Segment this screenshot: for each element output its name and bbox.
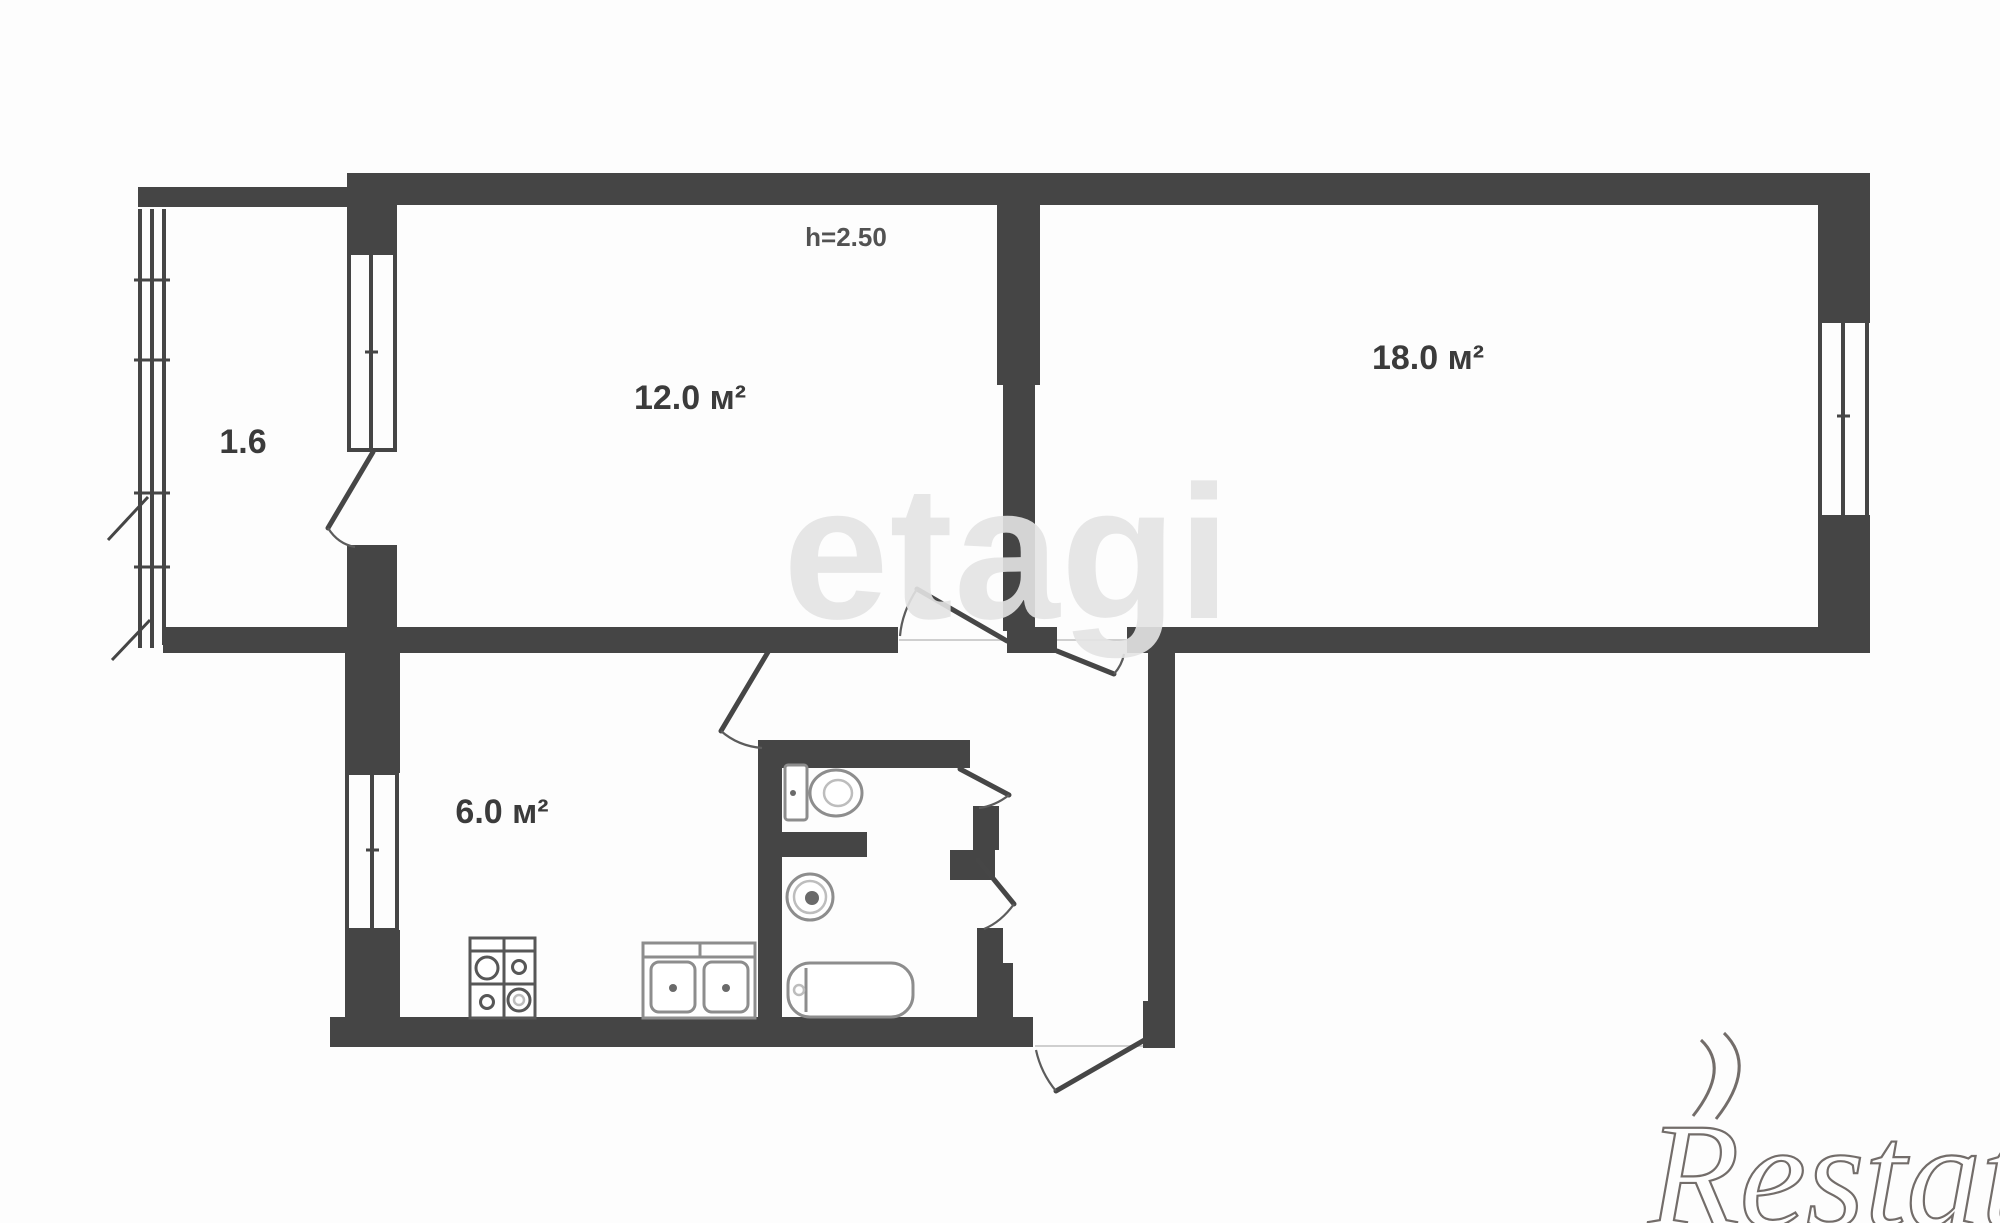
wall (347, 173, 1870, 205)
window-bedroom (1820, 323, 1867, 515)
wall (138, 187, 352, 207)
wall (758, 832, 867, 857)
watermark-restate: Restate (1647, 1033, 2000, 1223)
kitchen-sink-icon (643, 943, 755, 1018)
door-bathroom (978, 860, 1014, 929)
floor-plan: 1.6 12.0 м² 18.0 м² 6.0 м² h=2.50 etagi … (0, 0, 2000, 1223)
ceiling-height-label: h=2.50 (805, 222, 887, 252)
room-label-balcony: 1.6 (219, 423, 266, 461)
window-kitchen (345, 773, 399, 930)
watermark-etagi: etagi (783, 447, 1231, 659)
wall (977, 963, 1013, 1020)
bathtub-icon (788, 963, 913, 1017)
wall (345, 650, 400, 773)
wall (347, 545, 397, 633)
room-label-living: 12.0 м² (634, 379, 746, 417)
wall (345, 1017, 1033, 1047)
door-kitchen (721, 652, 768, 748)
wall (973, 806, 999, 850)
wall (347, 200, 397, 255)
room-label-bedroom: 18.0 м² (1372, 339, 1484, 377)
washbasin-icon (787, 874, 833, 920)
room-label-kitchen: 6.0 м² (455, 793, 548, 831)
door-entry (1035, 1038, 1148, 1091)
watermark-restate-text: Restate (1647, 1093, 2000, 1223)
wall (345, 930, 400, 1025)
wall (1818, 173, 1870, 323)
wall (1127, 627, 1870, 653)
wall (758, 740, 782, 1017)
window-balcony-partition (347, 255, 397, 452)
toilet-icon (785, 765, 862, 820)
window-balcony-left (108, 209, 170, 660)
wall (997, 200, 1040, 385)
wall (1148, 653, 1175, 1008)
door-balcony (328, 452, 373, 547)
door-wc (960, 769, 1009, 808)
stove-icon (470, 938, 535, 1018)
